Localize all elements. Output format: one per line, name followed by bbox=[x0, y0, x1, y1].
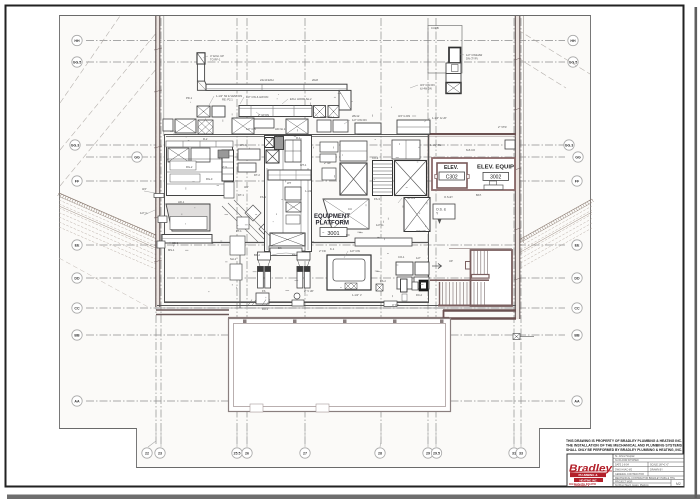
svg-text:FS: FS bbox=[262, 289, 266, 293]
svg-text:MS-1: MS-1 bbox=[168, 248, 175, 252]
svg-text:St. Johns Hospital: St. Johns Hospital bbox=[615, 455, 635, 458]
svg-text:PD-1: PD-1 bbox=[186, 96, 193, 100]
svg-text:29: 29 bbox=[426, 452, 430, 456]
svg-text:2" VTR: 2" VTR bbox=[498, 125, 507, 129]
svg-text:1/2" G: 1/2" G bbox=[140, 211, 148, 215]
svg-text:EXH. HOOD No.2: EXH. HOOD No.2 bbox=[290, 97, 312, 101]
svg-text:M2: M2 bbox=[676, 482, 681, 486]
svg-text:SCALE 1/8"=1'-0": SCALE 1/8"=1'-0" bbox=[650, 464, 669, 467]
svg-text:23: 23 bbox=[158, 452, 162, 456]
svg-text:HOOD No.1: HOOD No.1 bbox=[320, 115, 335, 119]
svg-text:28x12: 28x12 bbox=[352, 114, 360, 118]
svg-text:AA: AA bbox=[574, 400, 580, 404]
svg-text:1-1/2" RL: 1-1/2" RL bbox=[430, 143, 442, 147]
svg-text:CU: CU bbox=[348, 207, 352, 211]
svg-text:ELEV.: ELEV. bbox=[444, 165, 459, 171]
svg-text:3rd FLOOR KITCHEN: 3rd FLOOR KITCHEN bbox=[615, 459, 639, 462]
svg-text:6x6 CO: 6x6 CO bbox=[466, 148, 475, 152]
svg-text:EE: EE bbox=[575, 244, 580, 248]
svg-text:GG.3: GG.3 bbox=[71, 144, 80, 148]
svg-text:1/2": 1/2" bbox=[416, 256, 421, 260]
svg-text:3/4" G DN: 3/4" G DN bbox=[398, 114, 410, 118]
svg-text:BAT.: BAT. bbox=[476, 193, 482, 197]
svg-text:33: 33 bbox=[519, 452, 523, 456]
svg-text:RG-3: RG-3 bbox=[206, 177, 213, 181]
svg-text:3/4" CW DN: 3/4" CW DN bbox=[420, 83, 435, 87]
svg-text:O.S.&Y: O.S.&Y bbox=[444, 195, 453, 199]
svg-text:HH: HH bbox=[74, 39, 80, 43]
svg-text:DN (TYP): DN (TYP) bbox=[466, 57, 478, 61]
svg-text:1-1/2": 1-1/2" bbox=[305, 189, 312, 193]
svg-text:FS-3: FS-3 bbox=[374, 197, 380, 201]
svg-text:HD No.1: HD No.1 bbox=[275, 127, 286, 131]
svg-text:DT-2: DT-2 bbox=[254, 173, 260, 177]
svg-text:2" V: 2" V bbox=[222, 165, 227, 169]
svg-text:R-2: R-2 bbox=[203, 137, 208, 141]
svg-text:BB: BB bbox=[574, 334, 580, 338]
svg-text:25.5: 25.5 bbox=[234, 452, 241, 456]
svg-text:CURB: CURB bbox=[431, 26, 439, 30]
svg-text:ELEV. EQUIP: ELEV. EQUIP bbox=[477, 165, 515, 171]
svg-text:WT: WT bbox=[287, 181, 292, 185]
svg-text:1-1/2" IW & VENT DN: 1-1/2" IW & VENT DN bbox=[216, 94, 242, 98]
svg-text:C302: C302 bbox=[446, 174, 458, 180]
svg-text:CC: CC bbox=[574, 307, 580, 311]
svg-text:CB-1: CB-1 bbox=[172, 241, 179, 245]
svg-text:PT-1: PT-1 bbox=[236, 229, 242, 233]
svg-text:GG.5: GG.5 bbox=[73, 61, 82, 65]
svg-text:DRAWN BY: DRAWN BY bbox=[650, 469, 663, 472]
svg-text:DD: DD bbox=[574, 277, 580, 281]
svg-text:CU-2: CU-2 bbox=[372, 156, 379, 160]
svg-text:3002: 3002 bbox=[490, 175, 501, 181]
svg-text:Springfield, IL: Springfield, IL bbox=[574, 484, 590, 487]
svg-text:3/4" CW: 3/4" CW bbox=[416, 229, 426, 233]
svg-text:DATE 1-8-04: DATE 1-8-04 bbox=[615, 464, 629, 467]
svg-text:K-1: K-1 bbox=[330, 247, 335, 251]
svg-text:22: 22 bbox=[145, 452, 149, 456]
svg-text:24x10 EXH: 24x10 EXH bbox=[260, 78, 274, 82]
svg-text:AA: AA bbox=[74, 400, 80, 404]
svg-text:R-1: R-1 bbox=[296, 136, 301, 140]
svg-text:FS-2: FS-2 bbox=[380, 279, 386, 283]
svg-text:FD: FD bbox=[346, 233, 350, 237]
svg-text:HH: HH bbox=[570, 39, 576, 43]
svg-text:20x8: 20x8 bbox=[312, 78, 318, 82]
svg-text:3/4": 3/4" bbox=[244, 185, 249, 189]
svg-text:SH-1: SH-1 bbox=[230, 257, 237, 261]
svg-text:1/2" CW DN: 1/2" CW DN bbox=[352, 118, 367, 122]
svg-text:FD-2: FD-2 bbox=[416, 293, 422, 297]
svg-text:GG.3: GG.3 bbox=[565, 144, 574, 148]
svg-text:PLUMBING &: PLUMBING & bbox=[579, 473, 599, 477]
svg-text:GG: GG bbox=[575, 156, 581, 160]
svg-text:2" FD: 2" FD bbox=[319, 249, 326, 253]
svg-text:BK: BK bbox=[278, 246, 282, 250]
svg-text:2" V UP: 2" V UP bbox=[304, 289, 314, 293]
svg-text:WS-1: WS-1 bbox=[240, 143, 247, 147]
svg-text:4" FD: 4" FD bbox=[392, 303, 399, 307]
svg-text:WT-1: WT-1 bbox=[300, 163, 307, 167]
svg-text:1/2" G: 1/2" G bbox=[376, 223, 384, 227]
svg-text:PLATFORM: PLATFORM bbox=[316, 220, 350, 227]
svg-text:3/4": 3/4" bbox=[142, 187, 147, 191]
svg-text:FD-1: FD-1 bbox=[262, 307, 268, 311]
svg-text:1/2" CW&HW: 1/2" CW&HW bbox=[466, 53, 483, 57]
svg-text:RG-2: RG-2 bbox=[186, 165, 193, 169]
svg-text:MECHANICAL CONTRACTOR BRADLEY: MECHANICAL CONTRACTOR BRADLEY PLBG & HTG bbox=[615, 477, 675, 480]
svg-text:DT-1: DT-1 bbox=[238, 193, 244, 197]
svg-text:SHALL ONLY BE PERFORMED BY BRA: SHALL ONLY BE PERFORMED BY BRADLEY PLUMB… bbox=[566, 447, 682, 452]
svg-text:1/2" CW: 1/2" CW bbox=[246, 127, 256, 131]
svg-text:DD: DD bbox=[74, 277, 80, 281]
svg-text:28: 28 bbox=[378, 452, 382, 456]
svg-text:RE: P2.1: RE: P2.1 bbox=[222, 98, 233, 102]
svg-text:GG: GG bbox=[134, 156, 140, 160]
svg-text:2" IW DN: 2" IW DN bbox=[404, 196, 415, 200]
svg-text:EE: EE bbox=[75, 244, 80, 248]
svg-text:BB: BB bbox=[74, 334, 80, 338]
svg-text:FS-1: FS-1 bbox=[260, 195, 266, 199]
svg-text:UP: UP bbox=[449, 259, 453, 263]
svg-text:1/2" CW & HW DN: 1/2" CW & HW DN bbox=[246, 95, 268, 99]
svg-text:HD-1: HD-1 bbox=[178, 200, 185, 204]
svg-text:HEATING INC.: HEATING INC. bbox=[579, 478, 597, 482]
svg-text:31: 31 bbox=[512, 452, 516, 456]
svg-text:3001: 3001 bbox=[327, 231, 339, 237]
svg-text:& HW DN: & HW DN bbox=[420, 87, 432, 91]
svg-text:TO RF-1: TO RF-1 bbox=[210, 58, 221, 62]
svg-text:26: 26 bbox=[245, 452, 249, 456]
svg-text:1-1/2" V: 1-1/2" V bbox=[352, 293, 362, 297]
svg-text:2" IW: 2" IW bbox=[324, 161, 331, 165]
svg-text:1/2" CW: 1/2" CW bbox=[350, 249, 360, 253]
svg-text:4" EXH. UP: 4" EXH. UP bbox=[210, 54, 224, 58]
svg-text:27: 27 bbox=[303, 452, 307, 456]
svg-text:1-1/4" G UP: 1-1/4" G UP bbox=[432, 116, 447, 120]
svg-text:GENERAL CONTRACTOR: GENERAL CONTRACTOR bbox=[615, 473, 644, 476]
svg-text:29.5: 29.5 bbox=[433, 452, 440, 456]
svg-text:BK-2: BK-2 bbox=[254, 253, 260, 257]
svg-text:DWG HVAC-M2: DWG HVAC-M2 bbox=[615, 469, 633, 472]
svg-text:CC: CC bbox=[74, 307, 80, 311]
svg-text:3rd Floor Mech. Equip. Platfor: 3rd Floor Mech. Equip. Platform bbox=[615, 484, 649, 487]
svg-text:CO-1: CO-1 bbox=[398, 255, 405, 259]
